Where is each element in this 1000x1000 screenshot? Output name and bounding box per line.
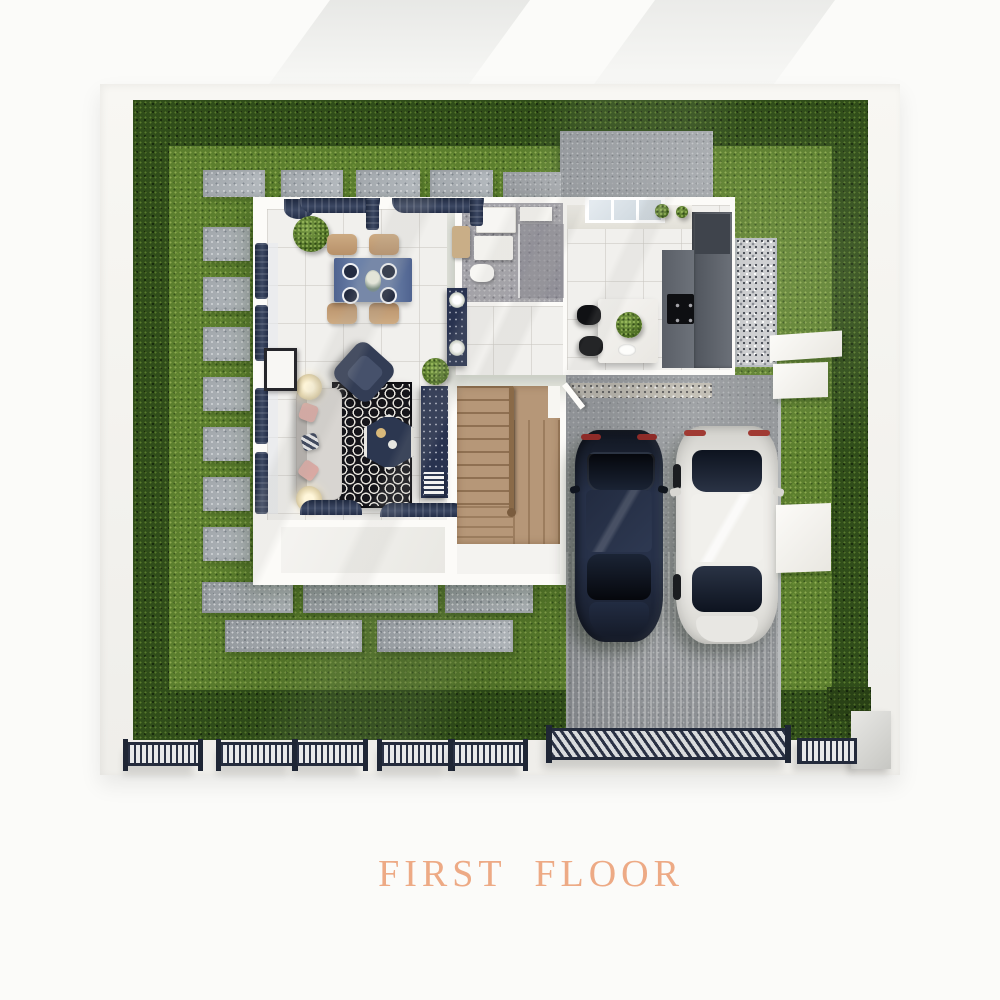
tail-light xyxy=(748,430,770,436)
shower-area xyxy=(518,224,564,298)
stair-nook xyxy=(548,386,560,418)
curtain-tail xyxy=(470,198,483,226)
stair-landing xyxy=(513,420,560,544)
wall-art-frame xyxy=(264,348,297,391)
back-patio-pad-wing xyxy=(503,172,561,200)
island-plant xyxy=(616,312,642,338)
floor-plan-rendering: FIRST FLOOR xyxy=(0,0,1000,1000)
gate-pillar xyxy=(851,711,891,769)
paver xyxy=(203,277,250,311)
paver xyxy=(203,477,250,511)
bar-cart xyxy=(452,226,470,258)
island-bowl xyxy=(618,344,636,356)
stair-treads xyxy=(457,386,513,506)
wheel xyxy=(673,464,681,490)
paver xyxy=(203,527,250,561)
bar-stool xyxy=(577,305,601,325)
bathroom-cabinet xyxy=(474,236,513,260)
windshield xyxy=(587,554,651,600)
windshield xyxy=(692,566,762,612)
hall-floor xyxy=(455,306,563,375)
paver xyxy=(281,170,343,197)
dark-blue-car xyxy=(575,430,663,642)
car-roof xyxy=(691,494,763,562)
tail-light xyxy=(684,430,706,436)
entry-porch-floor xyxy=(281,527,445,573)
hedge-border-top xyxy=(133,100,868,146)
tail-light xyxy=(581,434,601,440)
paver xyxy=(203,327,250,361)
table-centerpiece xyxy=(365,270,381,292)
flower-vase xyxy=(449,292,465,308)
paver xyxy=(202,582,293,613)
back-patio-pad xyxy=(560,131,713,200)
paver xyxy=(203,227,250,261)
hedge-border-left xyxy=(133,100,169,740)
curtain-swag xyxy=(380,503,466,517)
planter-box xyxy=(773,362,828,399)
curtain-panel xyxy=(255,452,268,514)
kitchen-shelf-plant xyxy=(676,206,688,218)
stair-handrail xyxy=(509,386,514,512)
sun-shadow xyxy=(268,0,530,86)
paver xyxy=(203,377,250,411)
place-setting xyxy=(342,287,359,304)
paver xyxy=(225,620,362,652)
wheel xyxy=(673,574,681,600)
paver xyxy=(303,582,438,613)
pedestrian-gate xyxy=(797,738,857,764)
curtain-panel xyxy=(255,243,268,299)
paver xyxy=(430,170,493,197)
paver xyxy=(377,620,513,652)
kitchen-tall-unit xyxy=(695,214,730,254)
fence-panel xyxy=(453,742,523,766)
dining-plant xyxy=(293,216,329,252)
sliding-driveway-gate xyxy=(549,728,788,760)
car-hood xyxy=(589,602,649,636)
kitchen-window-glass xyxy=(589,200,661,220)
place-setting xyxy=(380,263,397,280)
floor-title: FIRST FLOOR xyxy=(31,852,1000,896)
fence-panel xyxy=(382,742,450,766)
place-setting xyxy=(342,263,359,280)
side-wall-cap xyxy=(770,330,842,361)
toilet xyxy=(470,264,494,282)
paver xyxy=(203,170,265,197)
paver xyxy=(203,427,250,461)
fence-panel xyxy=(128,742,198,766)
book-stack xyxy=(424,472,444,496)
fence-panel xyxy=(221,742,293,766)
rear-window xyxy=(692,450,762,492)
table-lamp xyxy=(296,374,322,400)
bar-stool xyxy=(579,336,603,356)
paver xyxy=(445,582,533,613)
stair-lower-planks xyxy=(457,506,513,544)
planter-box xyxy=(776,503,831,573)
bathroom-shelf xyxy=(520,207,552,221)
stair-hall-floor xyxy=(457,544,560,574)
stair-newel-post xyxy=(507,508,516,517)
cooktop xyxy=(667,294,694,324)
paver xyxy=(356,170,420,197)
coffee-table-tray xyxy=(388,440,397,449)
tail-light xyxy=(637,434,657,440)
flower-vase xyxy=(449,340,465,356)
dining-chair xyxy=(369,234,399,255)
hedge-border-right xyxy=(832,100,868,740)
curtain-swag xyxy=(300,500,362,515)
white-car xyxy=(676,426,778,644)
rear-window xyxy=(587,452,655,492)
curtain-panel xyxy=(255,388,268,444)
sun-shadow xyxy=(593,0,835,86)
place-setting xyxy=(380,287,397,304)
dining-chair xyxy=(327,234,357,255)
dining-chair xyxy=(369,303,399,324)
kitchen-shelf-plant xyxy=(655,204,669,218)
living-plant xyxy=(422,358,449,385)
fence-panel xyxy=(297,742,363,766)
curtain-tail xyxy=(366,198,379,230)
car-hood xyxy=(696,616,758,642)
car-roof xyxy=(586,490,652,552)
dining-chair xyxy=(327,303,357,324)
coffee-table-tray xyxy=(376,428,386,438)
pebble-entry-strip xyxy=(570,383,712,398)
